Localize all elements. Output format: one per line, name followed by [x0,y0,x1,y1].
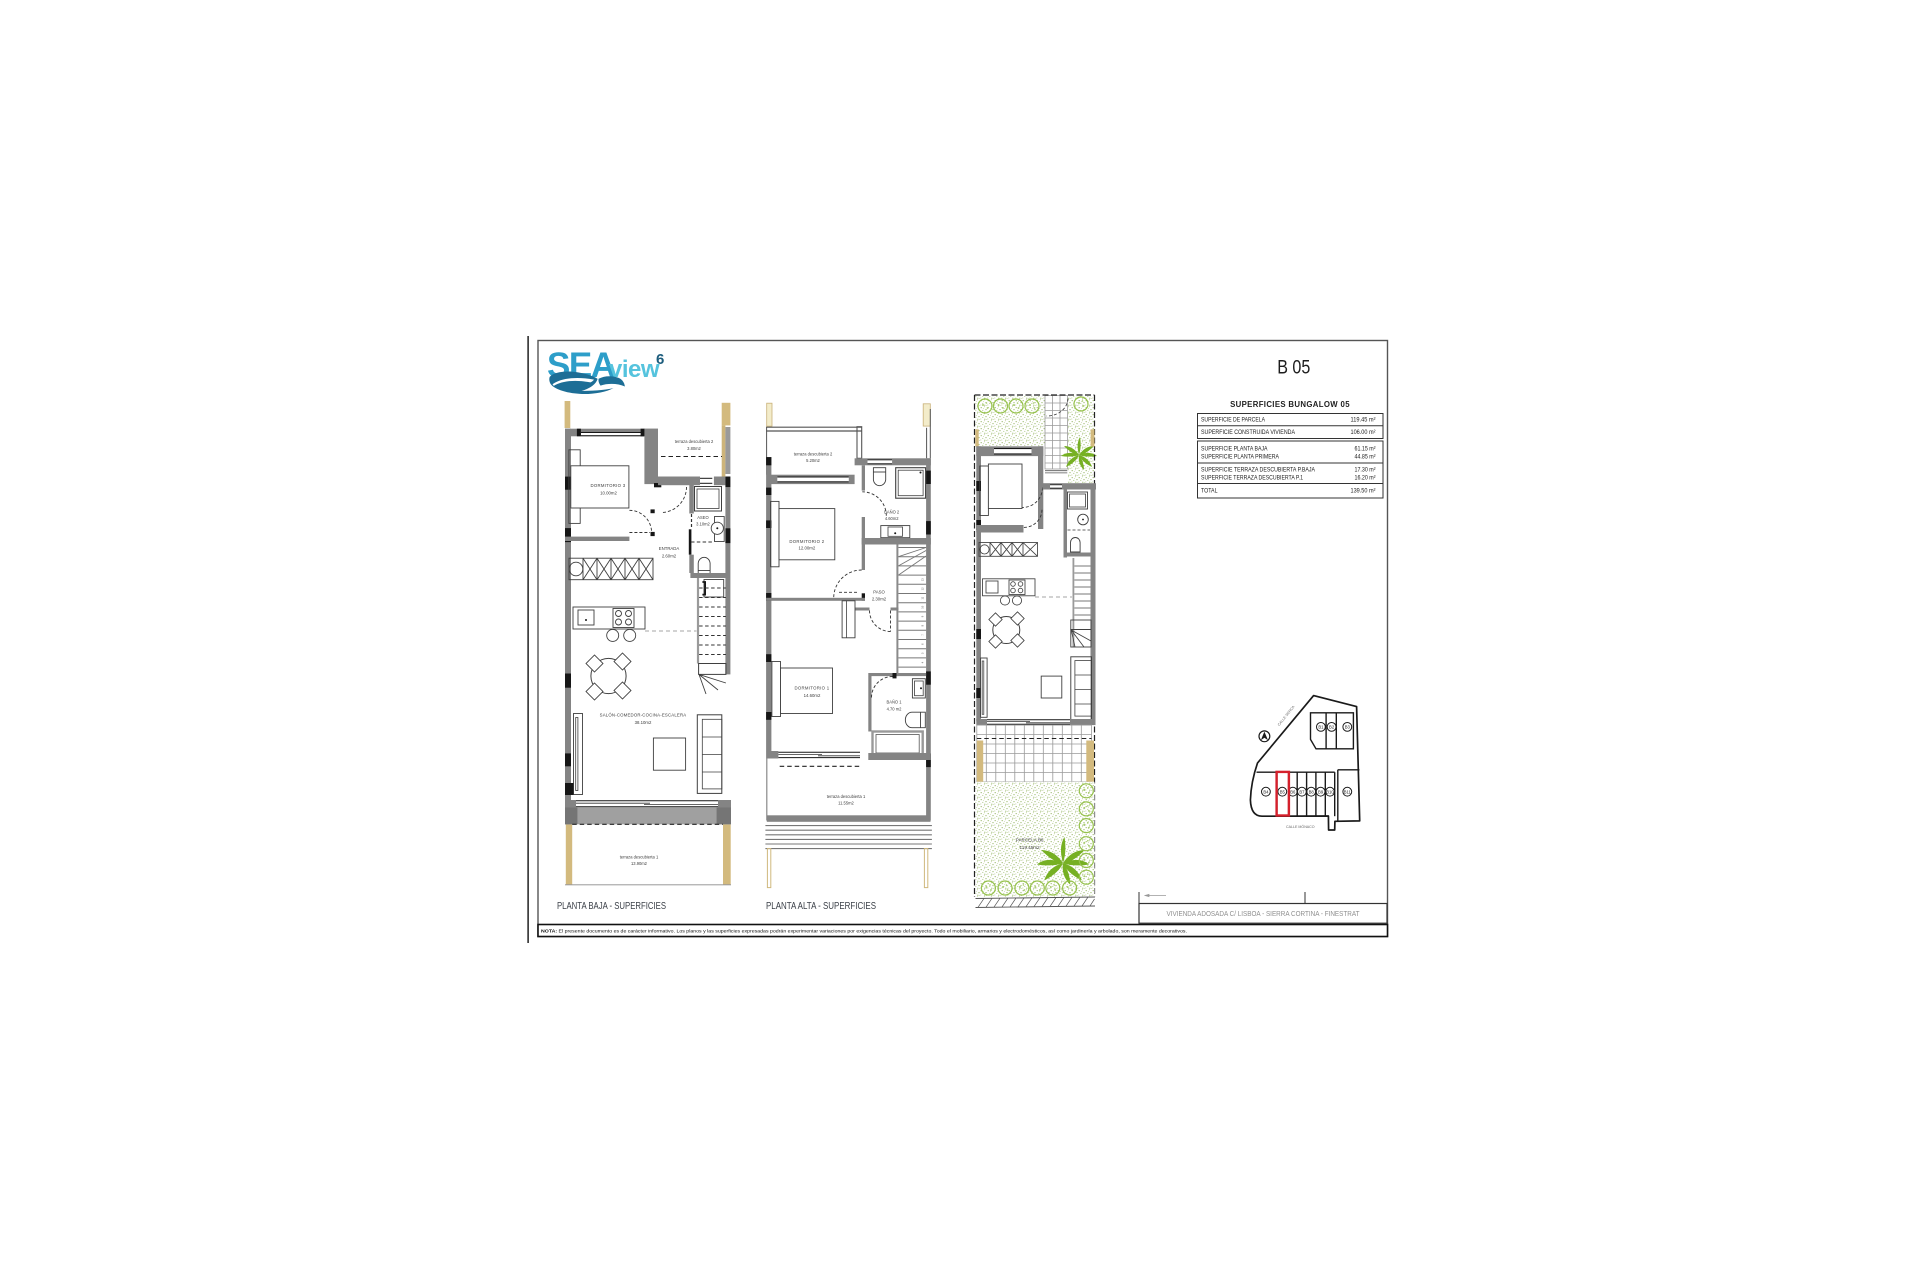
svg-text:SUPERFICIE PLANTA BAJA: SUPERFICIE PLANTA BAJA [1201,446,1268,453]
svg-text:11.55m2: 11.55m2 [838,801,854,806]
svg-text:DORMITORIO 2: DORMITORIO 2 [789,539,824,544]
svg-text:PARCELA B6: PARCELA B6 [1016,838,1044,843]
svg-text:B7: B7 [1299,789,1305,794]
svg-text:10.00m2: 10.00m2 [600,491,617,496]
svg-text:SUPERFICIES BUNGALOW 05: SUPERFICIES BUNGALOW 05 [1230,400,1350,409]
svg-text:TOTAL: TOTAL [1201,488,1218,495]
svg-text:terraza descubierta 1: terraza descubierta 1 [620,855,659,860]
svg-text:119.45 m²: 119.45 m² [1351,417,1376,424]
svg-text:B8: B8 [1309,789,1315,794]
svg-text:2.30m2: 2.30m2 [872,597,887,602]
svg-text:4.60m2: 4.60m2 [885,516,899,521]
svg-text:ENTRADA: ENTRADA [659,546,680,551]
svg-text:SALÓN-COMEDOR-COCINA-ESCALERA: SALÓN-COMEDOR-COCINA-ESCALERA [600,713,687,718]
svg-text:13.90m2: 13.90m2 [631,861,648,866]
svg-text:SUPERFICIE PLANTA PRIMERA: SUPERFICIE PLANTA PRIMERA [1201,454,1280,461]
svg-text:16.20 m²: 16.20 m² [1355,475,1376,482]
svg-text:12.00m2: 12.00m2 [799,546,816,551]
svg-text:14.60m2: 14.60m2 [804,693,821,698]
svg-text:SUPERFICIE DE PARCELA: SUPERFICIE DE PARCELA [1201,417,1266,424]
svg-text:6: 6 [656,351,664,368]
svg-text:38.10m2: 38.10m2 [635,720,652,725]
svg-text:B6: B6 [1290,789,1296,794]
svg-text:61.15 m²: 61.15 m² [1355,446,1376,453]
svg-text:B4: B4 [1263,789,1269,794]
svg-text:B1: B1 [1318,725,1324,730]
svg-text:B 05: B 05 [1277,357,1310,378]
svg-text:B9: B9 [1318,789,1324,794]
svg-text:BAÑO 2: BAÑO 2 [884,510,900,515]
svg-text:DORMITORIO 3: DORMITORIO 3 [590,483,625,488]
svg-text:NOTA: El presente documento es: NOTA: El presente documento es de caráct… [541,929,1187,934]
svg-text:2.60m2: 2.60m2 [662,554,677,559]
svg-text:PLANTA ALTA - SUPERFICIES: PLANTA ALTA - SUPERFICIES [766,901,876,912]
svg-text:ASEO: ASEO [697,515,708,520]
svg-text:119.45m2: 119.45m2 [1020,845,1041,850]
svg-text:3.10m2: 3.10m2 [696,522,710,527]
svg-text:DORMITORIO 1: DORMITORIO 1 [794,686,829,691]
svg-text:B10: B10 [1326,789,1334,794]
svg-text:139.50 m²: 139.50 m² [1351,488,1376,495]
svg-text:B5: B5 [1280,789,1286,794]
svg-text:SUPERFICIE CONSTRUIDA VIVIENDA: SUPERFICIE CONSTRUIDA VIVIENDA [1201,429,1296,436]
svg-text:terraza descubierta 1: terraza descubierta 1 [827,794,866,799]
svg-text:3.80m2: 3.80m2 [687,446,701,451]
svg-text:BAÑO 1: BAÑO 1 [886,700,902,705]
svg-text:PASO: PASO [873,590,885,595]
svg-text:44.85 m²: 44.85 m² [1355,454,1376,461]
svg-text:106.00 m²: 106.00 m² [1351,429,1376,436]
svg-text:B3: B3 [1345,725,1351,730]
svg-text:SUPERFICIE TERRAZA DESCUBIERTA: SUPERFICIE TERRAZA DESCUBIERTA P.1 [1201,475,1303,482]
svg-text:VIVIENDA ADOSADA C/ LISBOA - S: VIVIENDA ADOSADA C/ LISBOA - SIERRA CORT… [1167,909,1360,918]
svg-text:PLANTA BAJA - SUPERFICIES: PLANTA BAJA - SUPERFICIES [557,901,666,912]
svg-text:17.30 m²: 17.30 m² [1355,467,1376,474]
svg-text:B2: B2 [1329,725,1335,730]
svg-text:terraza descubierta 2: terraza descubierta 2 [794,452,833,457]
svg-text:4.70 m2: 4.70 m2 [887,707,903,712]
svg-text:terraza descubierta 2: terraza descubierta 2 [675,439,714,444]
svg-text:SUPERFICIE TERRAZA DESCUBIERTA: SUPERFICIE TERRAZA DESCUBIERTA P.BAJA [1201,467,1316,474]
svg-text:CALLE MÓNACO: CALLE MÓNACO [1286,824,1315,829]
svg-text:5.20m2: 5.20m2 [806,458,820,463]
svg-text:B11: B11 [1344,789,1352,794]
